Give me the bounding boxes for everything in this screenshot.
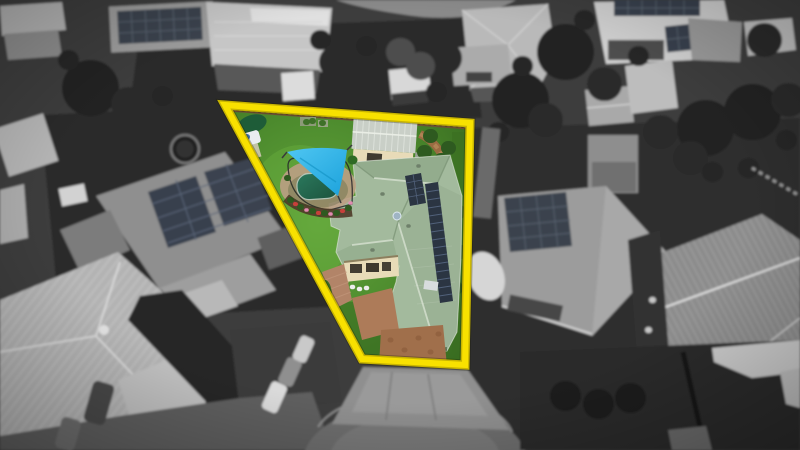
photo-canvas	[0, 0, 800, 450]
aerial-property-photo	[0, 0, 800, 450]
vignette-overlay	[0, 0, 800, 450]
